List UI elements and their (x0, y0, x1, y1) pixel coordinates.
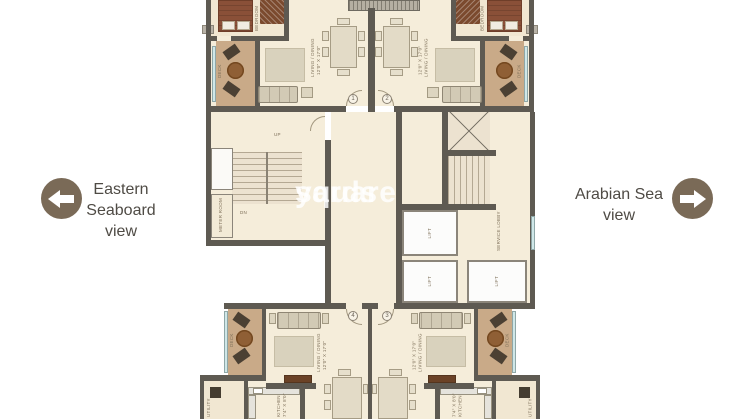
dining-chair (338, 369, 351, 376)
unit-2-top-right: BEDROOM DECK LIVING / DINING 12'0" X 17'… (375, 0, 540, 112)
tv-console (428, 375, 456, 383)
arrow-triangle (694, 190, 706, 208)
deck-table (227, 62, 244, 79)
living-dining-label: LIVING / DINING (423, 38, 430, 78)
right-arrow-icon (672, 178, 713, 219)
dining-chair (358, 31, 365, 41)
dining-chair (389, 369, 402, 376)
pillow (505, 21, 518, 30)
living-dining-label: LIVING / DINING (417, 333, 424, 373)
deck-label: DECK (229, 327, 236, 353)
unit-number-badge: 1 (348, 94, 358, 104)
lift-3: LIFT (467, 260, 527, 303)
meter-room-label: METER ROOM (218, 200, 225, 232)
lift-label: LIFT (427, 228, 434, 238)
kitchen-counter (248, 395, 256, 419)
dining-chair (409, 400, 416, 410)
dining-chair (358, 47, 365, 57)
deck-table (236, 330, 253, 347)
deck-label: DECK (516, 58, 523, 84)
unit-number-badge: 3 (382, 311, 392, 321)
window (531, 216, 535, 250)
wall (529, 0, 534, 106)
arrow-bar (680, 195, 695, 203)
left-arrow-icon (41, 178, 82, 219)
bedroom-label: BEDROOM (254, 3, 261, 33)
dining-table (378, 377, 408, 419)
bed (218, 0, 253, 32)
dining-chair (390, 18, 403, 25)
wall (300, 387, 305, 419)
wall (435, 387, 440, 419)
dining-chair (390, 69, 403, 76)
kitchen-sink (253, 388, 263, 394)
dining-chair (375, 47, 382, 57)
lift-2: LIFT (402, 260, 458, 303)
wall (536, 375, 540, 419)
rug (265, 48, 305, 82)
rug (426, 336, 466, 367)
lift-label: LIFT (427, 276, 434, 286)
lift-1: LIFT (402, 210, 458, 256)
arrow-bar (59, 195, 74, 203)
utility-label: UTILITY (206, 399, 213, 417)
wall (424, 383, 474, 389)
utility-label: UTILITY (527, 399, 534, 417)
dining-table (330, 26, 357, 68)
window (524, 46, 528, 102)
unit-1-top-left: BEDROOM DECK LIVING / DINING 12'0" X 17'… (200, 0, 368, 112)
living-dining-dims: 12'0" X 17'0" (417, 42, 424, 78)
stair-rail (266, 152, 268, 204)
side-table (269, 313, 276, 324)
living-dining-dims: 12'0" X 17'0" (322, 337, 329, 373)
sofa (442, 86, 482, 103)
window (512, 311, 516, 373)
upper-floor-hatch (348, 0, 420, 11)
unit-divider-wall (368, 8, 375, 112)
corridor-floor (331, 112, 402, 309)
stair-up-label: UP (274, 132, 281, 137)
side-table (301, 87, 313, 98)
wall (262, 309, 266, 375)
wall (530, 112, 535, 309)
washing-machine (210, 387, 221, 398)
tv-console (284, 375, 312, 383)
view-right-line1: Arabian Sea (572, 184, 666, 205)
view-label-right: Arabian Sea view (572, 184, 666, 226)
view-left-line3: view (86, 221, 156, 242)
side-table (464, 313, 471, 324)
dining-chair (324, 400, 331, 410)
watermark-line2: yards (295, 181, 378, 205)
kitchen-counter (484, 395, 492, 419)
dining-chair (322, 47, 329, 57)
deck-table (487, 330, 504, 347)
wardrobe (456, 0, 480, 24)
dining-chair (411, 31, 418, 41)
service-lobby-label: SERVICE LOBBY (496, 213, 503, 251)
side-table (322, 313, 329, 324)
sofa (258, 86, 298, 103)
duct-shaft (211, 148, 233, 190)
kitchen-label: KITCHEN (457, 399, 464, 417)
deck-label: DECK (217, 58, 224, 84)
stair-dn-label: DN (240, 210, 247, 215)
wall (284, 0, 289, 41)
bed (487, 0, 522, 32)
living-dining-dims: 12'0" X 17'0" (411, 337, 418, 373)
kitchen-sink (477, 388, 487, 394)
pillow (222, 21, 235, 30)
wall (266, 383, 316, 389)
view-left-line1: Eastern (86, 179, 156, 200)
deck-table (496, 62, 513, 79)
rug (274, 336, 314, 367)
washing-machine (519, 387, 530, 398)
dining-chair (409, 384, 416, 394)
wardrobe (260, 0, 284, 24)
unit-number-badge: 4 (348, 311, 358, 321)
service-stair-lower (448, 156, 490, 204)
deck-label: DECK (504, 327, 511, 353)
dining-chair (324, 384, 331, 394)
dining-chair (322, 31, 329, 41)
wall (206, 240, 331, 246)
view-left-line2: Seaboard (86, 200, 156, 221)
pillow (237, 21, 250, 30)
dining-chair (337, 18, 350, 25)
floor-plan: BEDROOM DECK LIVING / DINING 12'0" X 17'… (200, 0, 545, 419)
side-table (411, 313, 418, 324)
wall (206, 0, 211, 106)
view-label-left: Eastern Seaboard view (86, 179, 156, 242)
view-right-line2: view (572, 205, 666, 226)
wall (206, 112, 211, 246)
kitchen-dims: 7'4" X 8'0" (282, 399, 289, 417)
unit-4-bottom-left: DECK UTILITY KITCHEN 7'4" X 8'0" LIVING … (200, 303, 368, 419)
sofa (277, 312, 321, 329)
dining-chair (372, 384, 377, 394)
wall (492, 381, 496, 419)
dining-table (332, 377, 362, 419)
wall (474, 309, 478, 375)
kitchen-dims: 7'4" X 8'0" (451, 399, 458, 417)
lift-label: LIFT (494, 276, 501, 286)
dining-chair (375, 31, 382, 41)
living-dining-dims: 12'0" X 17'0" (316, 42, 323, 78)
bedroom-label: BEDROOM (479, 3, 486, 33)
service-stair-upper (448, 112, 490, 150)
sofa (419, 312, 463, 329)
dining-chair (337, 69, 350, 76)
pillow (490, 21, 503, 30)
wall (451, 0, 456, 41)
dining-table (383, 26, 410, 68)
side-table (427, 87, 439, 98)
unit-3-bottom-right: DECK UTILITY KITCHEN 7'4" X 8'0" LIVING … (375, 303, 540, 419)
dining-chair (363, 384, 368, 394)
unit-number-badge: 2 (382, 94, 392, 104)
rug (435, 48, 475, 82)
